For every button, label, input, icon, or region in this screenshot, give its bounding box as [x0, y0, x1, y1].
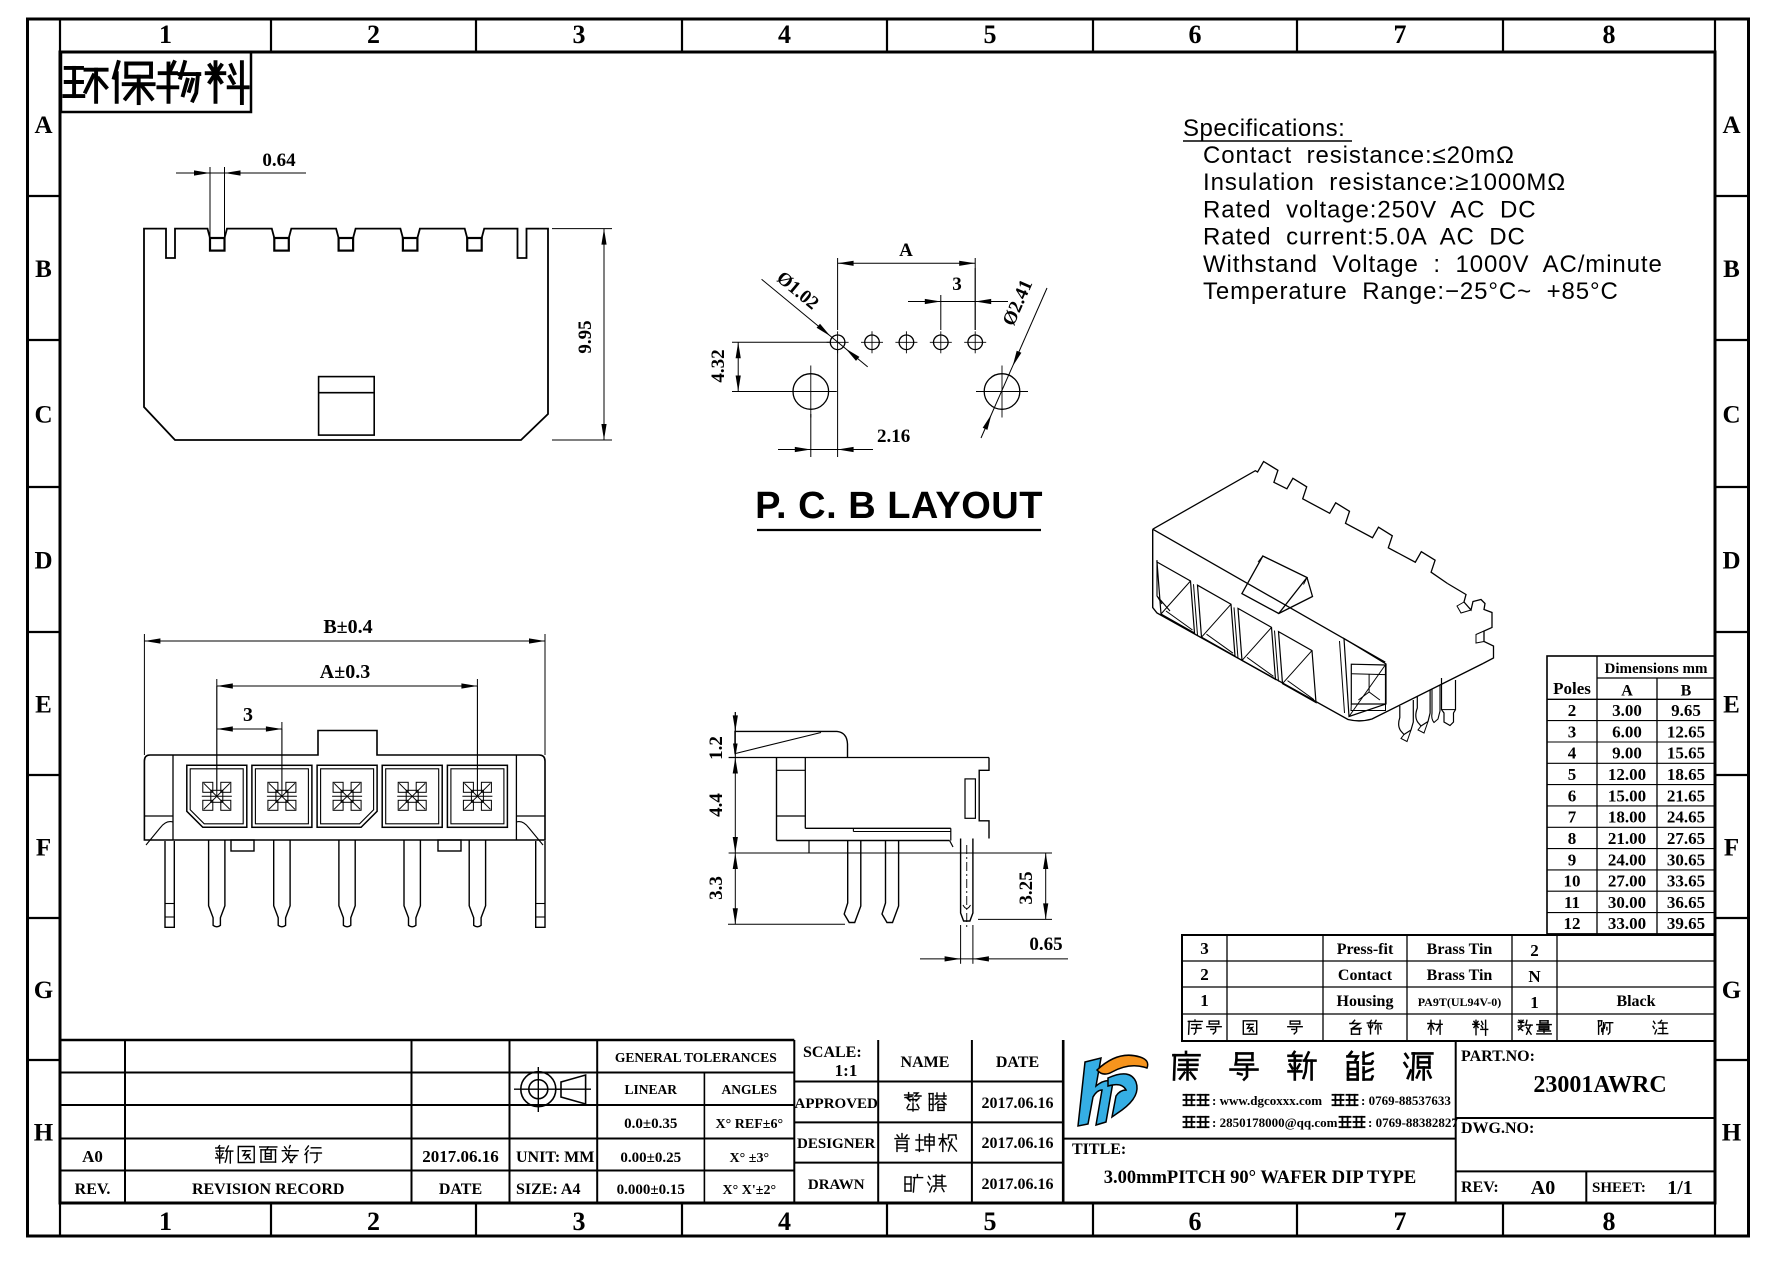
svg-text:4: 4 — [778, 1207, 791, 1236]
svg-text:E: E — [35, 692, 52, 719]
svg-text:F: F — [36, 835, 51, 862]
svg-text:2017.06.16: 2017.06.16 — [982, 1095, 1054, 1112]
svg-text:C: C — [1722, 402, 1740, 429]
svg-text:33.00: 33.00 — [1608, 914, 1646, 933]
svg-text:2: 2 — [1568, 701, 1577, 720]
svg-text:2017.06.16: 2017.06.16 — [982, 1176, 1054, 1193]
svg-text:7: 7 — [1394, 20, 1407, 49]
svg-text:3: 3 — [1200, 939, 1209, 958]
svg-text:B: B — [1723, 256, 1740, 283]
svg-text:9.00: 9.00 — [1612, 744, 1642, 763]
svg-text:12.65: 12.65 — [1667, 722, 1705, 741]
svg-text:9: 9 — [1568, 850, 1577, 869]
svg-text:8: 8 — [1603, 20, 1616, 49]
svg-text:F: F — [1724, 835, 1739, 862]
svg-text:P. C. B LAYOUT: P. C. B LAYOUT — [755, 485, 1043, 527]
svg-text:REV.: REV. — [75, 1181, 111, 1198]
svg-text:H: H — [34, 1120, 54, 1147]
svg-text:2017.06.16: 2017.06.16 — [982, 1135, 1054, 1152]
svg-text:18.00: 18.00 — [1608, 808, 1646, 827]
svg-text:Rated current:5.0A AC DC: Rated current:5.0A AC DC — [1203, 224, 1526, 251]
svg-text:REVISION RECORD: REVISION RECORD — [192, 1181, 344, 1198]
svg-text:6: 6 — [1189, 20, 1202, 49]
svg-text:0.00±0.25: 0.00±0.25 — [620, 1150, 681, 1166]
svg-text:3: 3 — [952, 274, 962, 295]
svg-text:A: A — [34, 112, 52, 139]
svg-text:2: 2 — [367, 20, 380, 49]
svg-text:4: 4 — [1568, 744, 1577, 763]
svg-text:Specifications:: Specifications: — [1183, 115, 1345, 142]
svg-text:1:1: 1:1 — [835, 1061, 858, 1080]
svg-text:9.95: 9.95 — [575, 320, 596, 353]
svg-text:3: 3 — [1568, 722, 1577, 741]
svg-text:Housing: Housing — [1337, 993, 1394, 1010]
svg-text:10: 10 — [1564, 872, 1581, 891]
svg-text:2: 2 — [1200, 965, 1209, 984]
svg-text:5: 5 — [1568, 765, 1577, 784]
svg-text:D: D — [34, 548, 52, 575]
svg-text:39.65: 39.65 — [1667, 914, 1705, 933]
svg-text:15.65: 15.65 — [1667, 744, 1705, 763]
svg-text:6: 6 — [1568, 786, 1577, 805]
svg-text:G: G — [34, 977, 53, 1004]
svg-text:D: D — [1722, 548, 1740, 575]
svg-text:APPROVED: APPROVED — [795, 1096, 878, 1112]
svg-text:1.2: 1.2 — [706, 736, 727, 760]
svg-text:11: 11 — [1564, 893, 1580, 912]
svg-text:PA9T(UL94V-0): PA9T(UL94V-0) — [1418, 995, 1502, 1009]
svg-text:23001AWRC: 23001AWRC — [1533, 1072, 1666, 1098]
svg-text:18.65: 18.65 — [1667, 765, 1705, 784]
svg-text:Contact resistance:≤20mΩ: Contact resistance:≤20mΩ — [1203, 142, 1515, 169]
svg-text:H: H — [1722, 1120, 1742, 1147]
svg-text:LINEAR: LINEAR — [625, 1082, 678, 1097]
svg-text:5: 5 — [984, 1207, 997, 1236]
svg-text:0.000±0.15: 0.000±0.15 — [617, 1182, 685, 1198]
svg-text:7: 7 — [1394, 1207, 1407, 1236]
svg-text:30.00: 30.00 — [1608, 893, 1646, 912]
svg-text:9.65: 9.65 — [1671, 701, 1701, 720]
svg-text:30.65: 30.65 — [1667, 850, 1705, 869]
svg-text:1: 1 — [1200, 991, 1209, 1010]
svg-text:21.00: 21.00 — [1608, 829, 1646, 848]
svg-text:3.00mmPITCH 90° WAFER DIP TYPE: 3.00mmPITCH 90° WAFER DIP TYPE — [1104, 1168, 1417, 1188]
svg-text:3.25: 3.25 — [1016, 871, 1037, 904]
svg-text:2.16: 2.16 — [877, 426, 910, 447]
svg-text:Temperature Range:−25°C~ +85: Temperature Range:−25°C~ +85°C — [1203, 278, 1619, 305]
svg-text:GENERAL TOLERANCES: GENERAL TOLERANCES — [615, 1050, 777, 1065]
svg-text:Withstand Voltage : 1000V A: Withstand Voltage : 1000V AC/minute — [1203, 251, 1663, 278]
svg-text:15.00: 15.00 — [1608, 786, 1646, 805]
svg-text:24.65: 24.65 — [1667, 808, 1705, 827]
svg-text:DESIGNER: DESIGNER — [797, 1136, 876, 1152]
svg-text:1/1: 1/1 — [1667, 1177, 1693, 1199]
svg-text:2017.06.16: 2017.06.16 — [422, 1147, 499, 1166]
svg-text:G: G — [1722, 977, 1741, 1004]
svg-text:2: 2 — [1530, 941, 1539, 960]
svg-text:Poles: Poles — [1553, 679, 1591, 698]
svg-text:NAME: NAME — [901, 1054, 950, 1071]
svg-text:3.3: 3.3 — [706, 876, 727, 900]
svg-text:Contact: Contact — [1338, 967, 1393, 984]
svg-text:33.65: 33.65 — [1667, 872, 1705, 891]
svg-text:36.65: 36.65 — [1667, 893, 1705, 912]
svg-text:B: B — [35, 256, 52, 283]
svg-text:SIZE: A4: SIZE: A4 — [516, 1181, 580, 1198]
svg-text:TITLE:: TITLE: — [1072, 1141, 1126, 1158]
svg-text:Press-fit: Press-fit — [1337, 941, 1394, 958]
svg-text:7: 7 — [1568, 808, 1577, 827]
svg-text:Black: Black — [1616, 993, 1655, 1010]
svg-text:Dimensions mm: Dimensions mm — [1605, 661, 1708, 677]
svg-text:21.65: 21.65 — [1667, 786, 1705, 805]
svg-text:PART.NO:: PART.NO: — [1461, 1048, 1535, 1065]
svg-text:SCALE:: SCALE: — [803, 1044, 862, 1061]
svg-text:3.00: 3.00 — [1612, 701, 1642, 720]
svg-text:Brass Tin: Brass Tin — [1427, 941, 1493, 958]
svg-text:8: 8 — [1603, 1207, 1616, 1236]
svg-text:X° ±3°: X° ±3° — [730, 1151, 770, 1166]
svg-text:A: A — [899, 240, 913, 261]
svg-text:B±0.4: B±0.4 — [323, 616, 372, 638]
svg-text:8: 8 — [1568, 829, 1577, 848]
svg-text:12.00: 12.00 — [1608, 765, 1646, 784]
svg-text:SHEET:: SHEET: — [1592, 1180, 1646, 1196]
svg-text:12: 12 — [1564, 914, 1581, 933]
svg-text:4.4: 4.4 — [706, 793, 727, 817]
svg-text:A0: A0 — [1531, 1177, 1555, 1199]
svg-text:Brass Tin: Brass Tin — [1427, 967, 1493, 984]
svg-text:X° X'±2°: X° X'±2° — [723, 1183, 777, 1198]
svg-text:: 0769-88382827: : 0769-88382827 — [1368, 1115, 1458, 1130]
svg-text:B: B — [1681, 683, 1692, 700]
svg-text:: 0769-88537633: : 0769-88537633 — [1361, 1093, 1451, 1108]
svg-text:A0: A0 — [82, 1147, 103, 1166]
svg-text:Rated voltage:250V AC DC: Rated voltage:250V AC DC — [1203, 196, 1536, 223]
svg-text:: www.dgcoxxx.com: : www.dgcoxxx.com — [1212, 1093, 1322, 1108]
svg-text:27.00: 27.00 — [1608, 872, 1646, 891]
svg-text:DATE: DATE — [439, 1181, 482, 1198]
svg-text:E: E — [1723, 692, 1740, 719]
svg-text:C: C — [34, 402, 52, 429]
svg-text:3: 3 — [243, 704, 253, 726]
svg-text:DWG.NO:: DWG.NO: — [1461, 1120, 1534, 1137]
svg-text:4.32: 4.32 — [708, 349, 729, 382]
svg-text:1: 1 — [1530, 993, 1539, 1012]
svg-text:24.00: 24.00 — [1608, 850, 1646, 869]
svg-text:0.65: 0.65 — [1029, 934, 1062, 955]
svg-text:0.0±0.35: 0.0±0.35 — [624, 1116, 677, 1132]
svg-text:0.64: 0.64 — [262, 150, 296, 171]
svg-text:1: 1 — [159, 1207, 172, 1236]
svg-text:DATE: DATE — [996, 1054, 1039, 1071]
svg-text:N: N — [1528, 967, 1541, 986]
svg-text:6: 6 — [1189, 1207, 1202, 1236]
svg-text:A: A — [1722, 112, 1740, 139]
svg-text:1: 1 — [159, 20, 172, 49]
svg-text:4: 4 — [778, 20, 791, 49]
svg-text:A: A — [1621, 683, 1633, 700]
svg-text:3: 3 — [573, 1207, 586, 1236]
svg-text:27.65: 27.65 — [1667, 829, 1705, 848]
svg-text:6.00: 6.00 — [1612, 722, 1642, 741]
svg-text:: 2850178000@qq.com: : 2850178000@qq.com — [1212, 1115, 1338, 1130]
svg-text:Insulation resistance:≥1000MΩ: Insulation resistance:≥1000MΩ — [1203, 169, 1566, 196]
svg-text:DRAWN: DRAWN — [808, 1177, 865, 1193]
svg-text:3: 3 — [573, 20, 586, 49]
svg-text:5: 5 — [984, 20, 997, 49]
svg-text:REV:: REV: — [1461, 1179, 1499, 1196]
svg-text:A±0.3: A±0.3 — [320, 661, 370, 683]
svg-text:2: 2 — [367, 1207, 380, 1236]
svg-text:UNIT: MM: UNIT: MM — [516, 1149, 594, 1166]
svg-text:ANGLES: ANGLES — [722, 1082, 778, 1097]
svg-text:X° REF±6°: X° REF±6° — [716, 1117, 784, 1132]
